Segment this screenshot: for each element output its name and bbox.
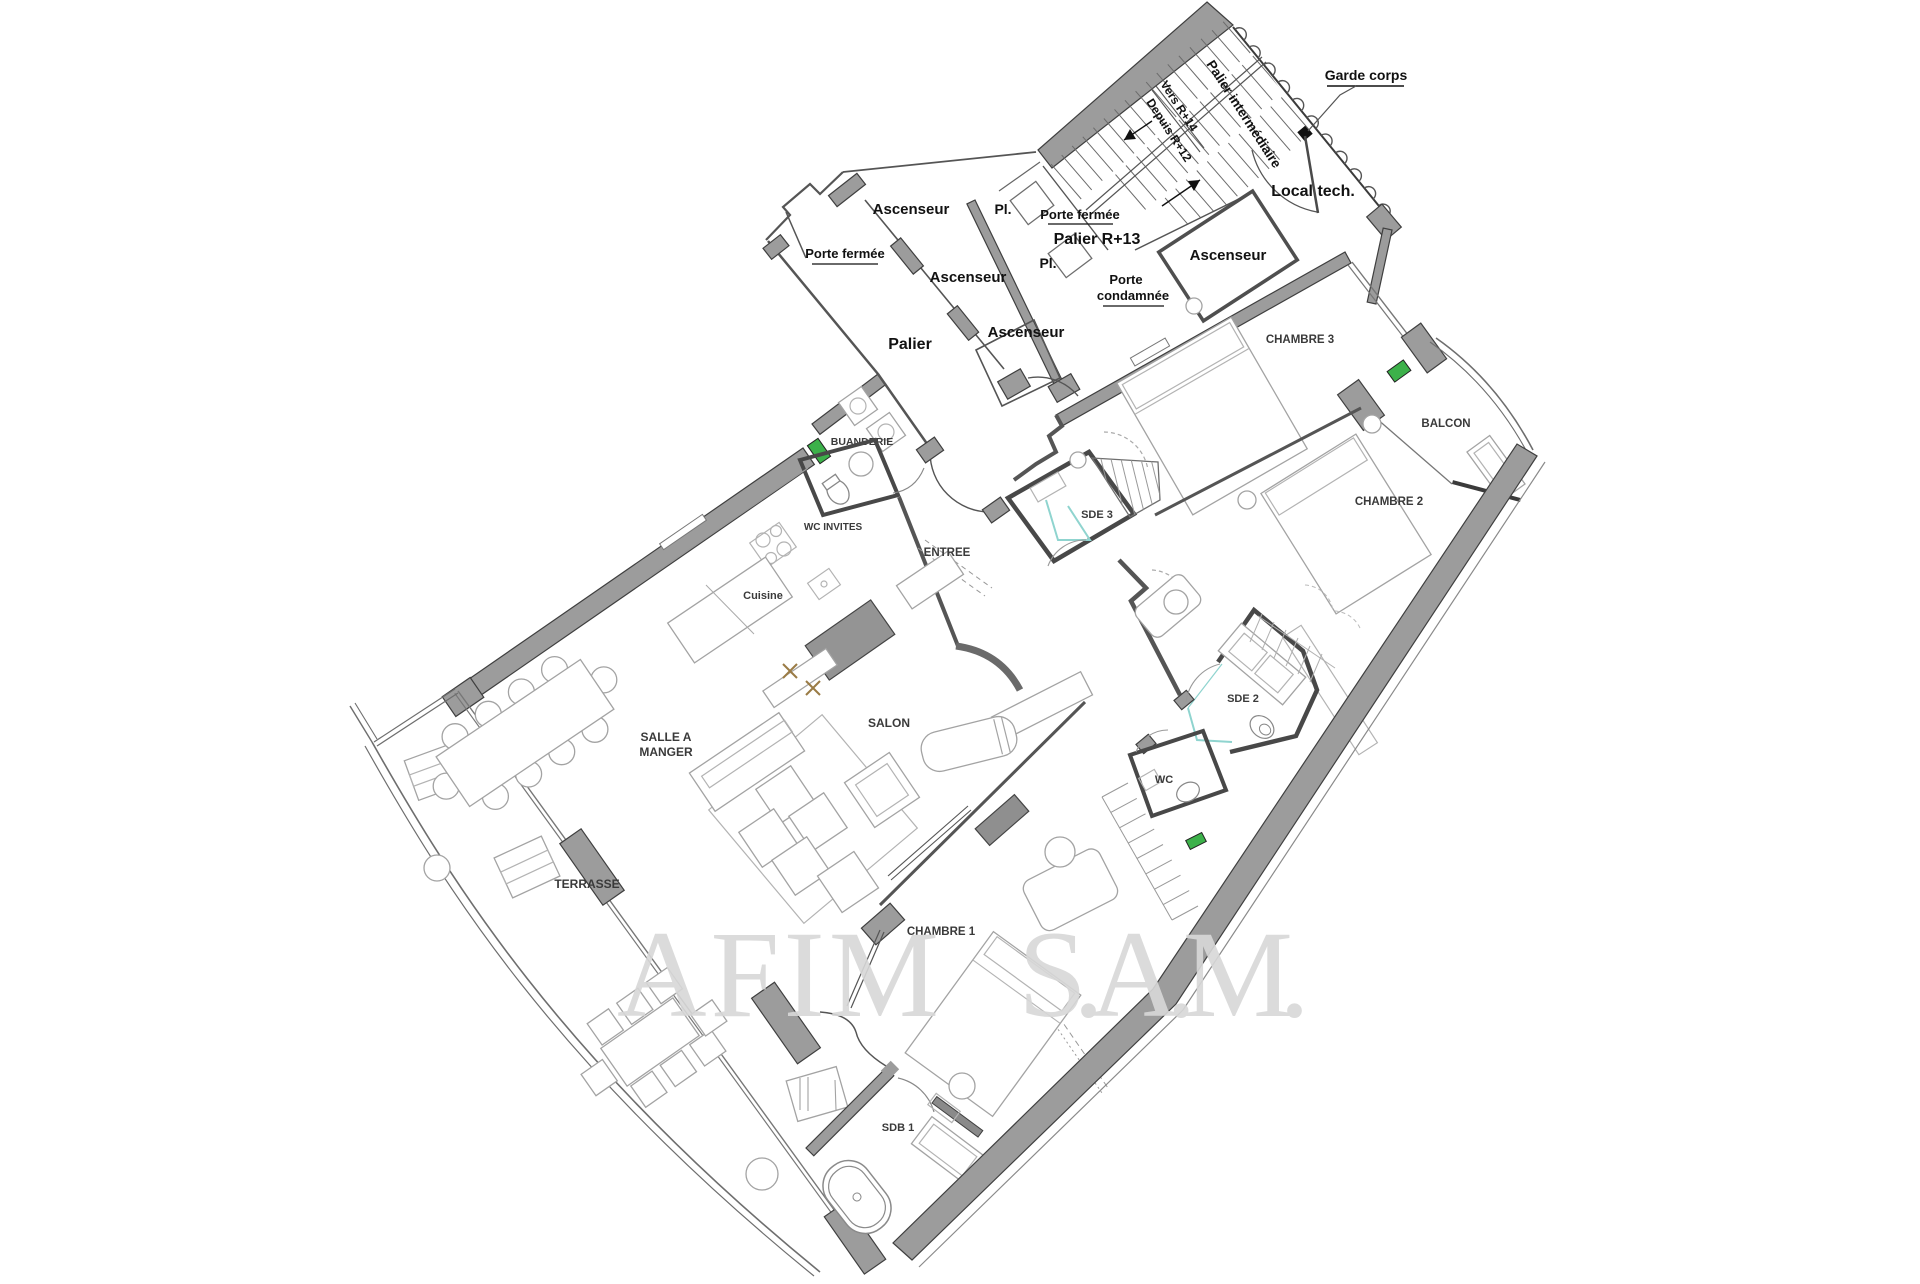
svg-text:Ascenseur: Ascenseur [930,269,1007,286]
svg-text:MANGER: MANGER [639,745,693,759]
svg-text:Porte fermée: Porte fermée [1040,207,1119,222]
svg-text:WC INVITES: WC INVITES [804,522,863,533]
svg-text:Garde corps: Garde corps [1325,67,1408,83]
svg-text:S.A.M.: S.A.M. [1018,906,1310,1043]
svg-text:Porte fermée: Porte fermée [805,246,884,261]
svg-text:SALON: SALON [868,716,910,730]
svg-text:Palier R+13: Palier R+13 [1054,231,1141,248]
svg-text:SDE 3: SDE 3 [1081,509,1113,521]
svg-text:CHAMBRE 3: CHAMBRE 3 [1266,334,1334,346]
svg-text:SDE 2: SDE 2 [1227,693,1259,705]
svg-text:BALCON: BALCON [1421,418,1470,430]
svg-text:AFIM: AFIM [617,906,939,1043]
svg-text:Palier: Palier [888,336,932,353]
svg-text:Ascenseur: Ascenseur [988,324,1065,341]
svg-text:TERRASSE: TERRASSE [554,877,619,891]
svg-text:CHAMBRE 2: CHAMBRE 2 [1355,496,1423,508]
svg-text:Cuisine: Cuisine [743,590,783,602]
svg-text:Pl.: Pl. [994,201,1011,217]
svg-text:SALLE A: SALLE A [641,730,692,744]
svg-text:Local tech.: Local tech. [1271,183,1355,200]
svg-text:Ascenseur: Ascenseur [873,201,950,218]
svg-text:Ascenseur: Ascenseur [1190,247,1267,264]
svg-text:ENTREE: ENTREE [924,547,971,559]
svg-text:Pl.: Pl. [1039,255,1056,271]
svg-text:WC: WC [1155,774,1173,786]
svg-text:SDB 1: SDB 1 [882,1122,914,1134]
svg-text:condamnée: condamnée [1097,288,1169,303]
svg-text:Porte: Porte [1109,272,1142,287]
